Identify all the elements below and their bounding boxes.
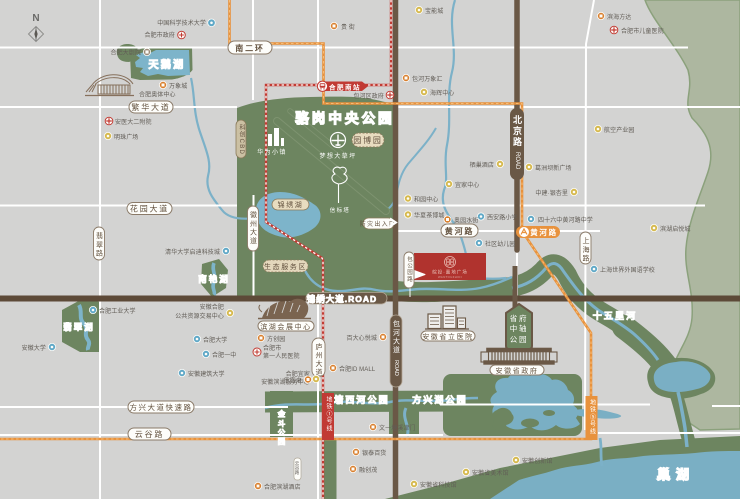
svg-text:宝能城: 宝能城 <box>425 7 443 15</box>
svg-text:梦想大草坪: 梦想大草坪 <box>319 152 356 160</box>
svg-text:ROAD: ROAD <box>514 152 520 170</box>
svg-text:滨湖会展中心: 滨湖会展中心 <box>260 322 312 331</box>
svg-text:葛洲坝新广场: 葛洲坝新广场 <box>535 164 572 172</box>
svg-text:科创CBD: 科创CBD <box>238 123 245 155</box>
svg-text:黄河路: 黄河路 <box>530 227 558 237</box>
svg-text:安徽省立医院: 安徽省立医院 <box>422 332 474 341</box>
svg-text:方兴大道快速路: 方兴大道快速路 <box>130 402 193 412</box>
svg-text:海辉中心: 海辉中心 <box>430 89 454 97</box>
svg-text:N: N <box>32 13 39 24</box>
svg-text:滨海方达: 滨海方达 <box>607 13 631 21</box>
svg-text:上海世界外国语学校: 上海世界外国语学校 <box>600 266 655 274</box>
svg-text:锦绣大道.ROAD: 锦绣大道.ROAD <box>307 294 377 304</box>
svg-text:安徽省科技馆: 安徽省科技馆 <box>420 481 457 489</box>
svg-text:华夏茶博城: 华夏茶博城 <box>414 212 445 220</box>
svg-text:四十六中黄河路中学: 四十六中黄河路中学 <box>538 216 593 224</box>
svg-text:航空产业园: 航空产业园 <box>604 126 635 134</box>
svg-text:西安路小学: 西安路小学 <box>487 214 518 222</box>
svg-text:合肥ID MALL: 合肥ID MALL <box>339 365 376 373</box>
svg-text:安徽大学: 安徽大学 <box>22 344 46 352</box>
svg-text:生态服务区: 生态服务区 <box>264 262 307 271</box>
svg-text:社区幼儿园: 社区幼儿园 <box>485 240 516 248</box>
svg-text:百大心悦城: 百大心悦城 <box>346 334 377 342</box>
svg-text:公共资源交易中心: 公共资源交易中心 <box>175 312 224 320</box>
svg-text:园博园: 园博园 <box>353 135 382 145</box>
svg-text:上海路: 上海路 <box>582 236 590 263</box>
svg-text:第一人民医院: 第一人民医院 <box>263 352 300 360</box>
svg-text:包河区政府: 包河区政府 <box>353 92 384 100</box>
svg-text:安徽合肥: 安徽合肥 <box>200 303 224 311</box>
svg-text:万象城: 万象城 <box>169 82 187 90</box>
svg-text:合肥大剧院: 合肥大剧院 <box>110 49 141 57</box>
svg-text:ROAD: ROAD <box>393 360 399 376</box>
svg-text:翡翠路: 翡翠路 <box>96 231 104 258</box>
svg-text:安徽省政府: 安徽省政府 <box>496 366 539 375</box>
svg-text:信标塔: 信标塔 <box>330 206 350 214</box>
svg-text:合肥工业大学: 合肥工业大学 <box>99 307 136 315</box>
svg-text:奥园水街: 奥园水街 <box>454 217 478 225</box>
svg-text:WANTOUZHIDI: WANTOUZHIDI <box>438 275 462 279</box>
svg-text:华为小镇: 华为小镇 <box>257 148 287 156</box>
svg-text:中轴: 中轴 <box>510 323 528 333</box>
svg-text:地铁①号线: 地铁①号线 <box>325 395 332 432</box>
svg-text:宜家中心: 宜家中心 <box>455 181 479 189</box>
svg-text:贵 街: 贵 街 <box>341 23 355 31</box>
svg-text:栖巢酒店: 栖巢酒店 <box>470 161 494 169</box>
svg-text:文一塘溪津门: 文一塘溪津门 <box>379 424 416 432</box>
svg-text:合肥滨湖酒店: 合肥滨湖酒店 <box>264 483 301 491</box>
svg-text:合肥南站: 合肥南站 <box>328 82 361 91</box>
svg-text:合肥市政府: 合肥市政府 <box>144 31 175 39</box>
svg-text:巢湖: 巢湖 <box>656 467 695 482</box>
svg-text:安徽省美术馆: 安徽省美术馆 <box>472 469 509 477</box>
svg-text:合肥市: 合肥市 <box>263 344 281 352</box>
svg-text:滨湖启悦城: 滨湖启悦城 <box>660 225 691 233</box>
svg-text:融创茂: 融创茂 <box>359 466 377 474</box>
svg-text:塘西河公园: 塘西河公园 <box>334 394 390 405</box>
svg-text:地铁⑤号线: 地铁⑤号线 <box>589 398 596 435</box>
svg-text:庐州大道: 庐州大道 <box>315 342 323 376</box>
svg-text:繁华大道: 繁华大道 <box>131 102 170 112</box>
svg-text:云谷路: 云谷路 <box>294 461 300 476</box>
svg-text:北京路: 北京路 <box>512 114 523 148</box>
svg-text:金斗公园: 金斗公园 <box>277 409 286 447</box>
svg-text:南艳湖: 南艳湖 <box>198 274 230 284</box>
svg-text:合肥市儿童医院: 合肥市儿童医院 <box>621 27 664 35</box>
svg-text:中建·银杏里: 中建·银杏里 <box>535 189 568 197</box>
svg-text:银泰百货: 银泰百货 <box>362 449 386 457</box>
svg-text:中国科学技术大学: 中国科学技术大学 <box>157 19 206 27</box>
svg-text:翡翠湖: 翡翠湖 <box>63 322 95 332</box>
svg-text:黄河路: 黄河路 <box>445 226 474 236</box>
svg-text:骆岗中央公园: 骆岗中央公园 <box>295 110 395 126</box>
svg-text:方兴湖公园: 方兴湖公园 <box>412 394 468 405</box>
svg-text:十五里河: 十五里河 <box>593 310 637 321</box>
svg-text:锦绣湖: 锦绣湖 <box>278 200 304 209</box>
svg-text:安徽创新馆: 安徽创新馆 <box>522 457 553 465</box>
svg-text:包河大道: 包河大道 <box>393 319 401 354</box>
svg-text:合肥一中: 合肥一中 <box>212 351 236 359</box>
svg-text:包公园路: 包公园路 <box>406 255 413 283</box>
svg-text:方创园: 方创园 <box>267 335 285 343</box>
svg-text:徽州大道: 徽州大道 <box>250 210 258 245</box>
svg-text:安医大二附院: 安医大二附院 <box>115 118 152 126</box>
svg-text:合肥大学: 合肥大学 <box>203 336 227 344</box>
svg-text:合肥奥体中心: 合肥奥体中心 <box>139 91 176 99</box>
svg-text:安徽建筑大学: 安徽建筑大学 <box>188 370 225 378</box>
svg-text:清华大学启迪科技城: 清华大学启迪科技城 <box>165 248 220 256</box>
svg-text:云谷路: 云谷路 <box>135 429 164 439</box>
svg-text:明珠广场: 明珠广场 <box>114 133 138 141</box>
svg-text:南二环: 南二环 <box>235 43 264 53</box>
svg-text:和园中心: 和园中心 <box>414 196 438 204</box>
svg-text:公园: 公园 <box>510 335 528 344</box>
svg-text:乐客来: 乐客来 <box>284 377 302 385</box>
svg-text:包河万象汇: 包河万象汇 <box>412 75 443 83</box>
svg-text:省府: 省府 <box>510 313 528 323</box>
svg-text:花园大道: 花园大道 <box>130 204 169 214</box>
svg-text:天鹅湖: 天鹅湖 <box>149 58 186 71</box>
